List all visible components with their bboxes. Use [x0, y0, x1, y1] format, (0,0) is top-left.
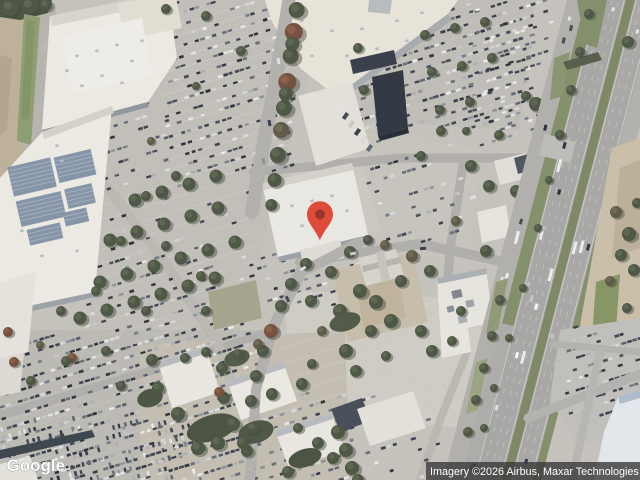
svg-text:Google: Google — [7, 456, 66, 475]
svg-text:Imagery ©2026 Airbus, Maxar Te: Imagery ©2026 Airbus, Maxar Technologies — [430, 466, 639, 478]
